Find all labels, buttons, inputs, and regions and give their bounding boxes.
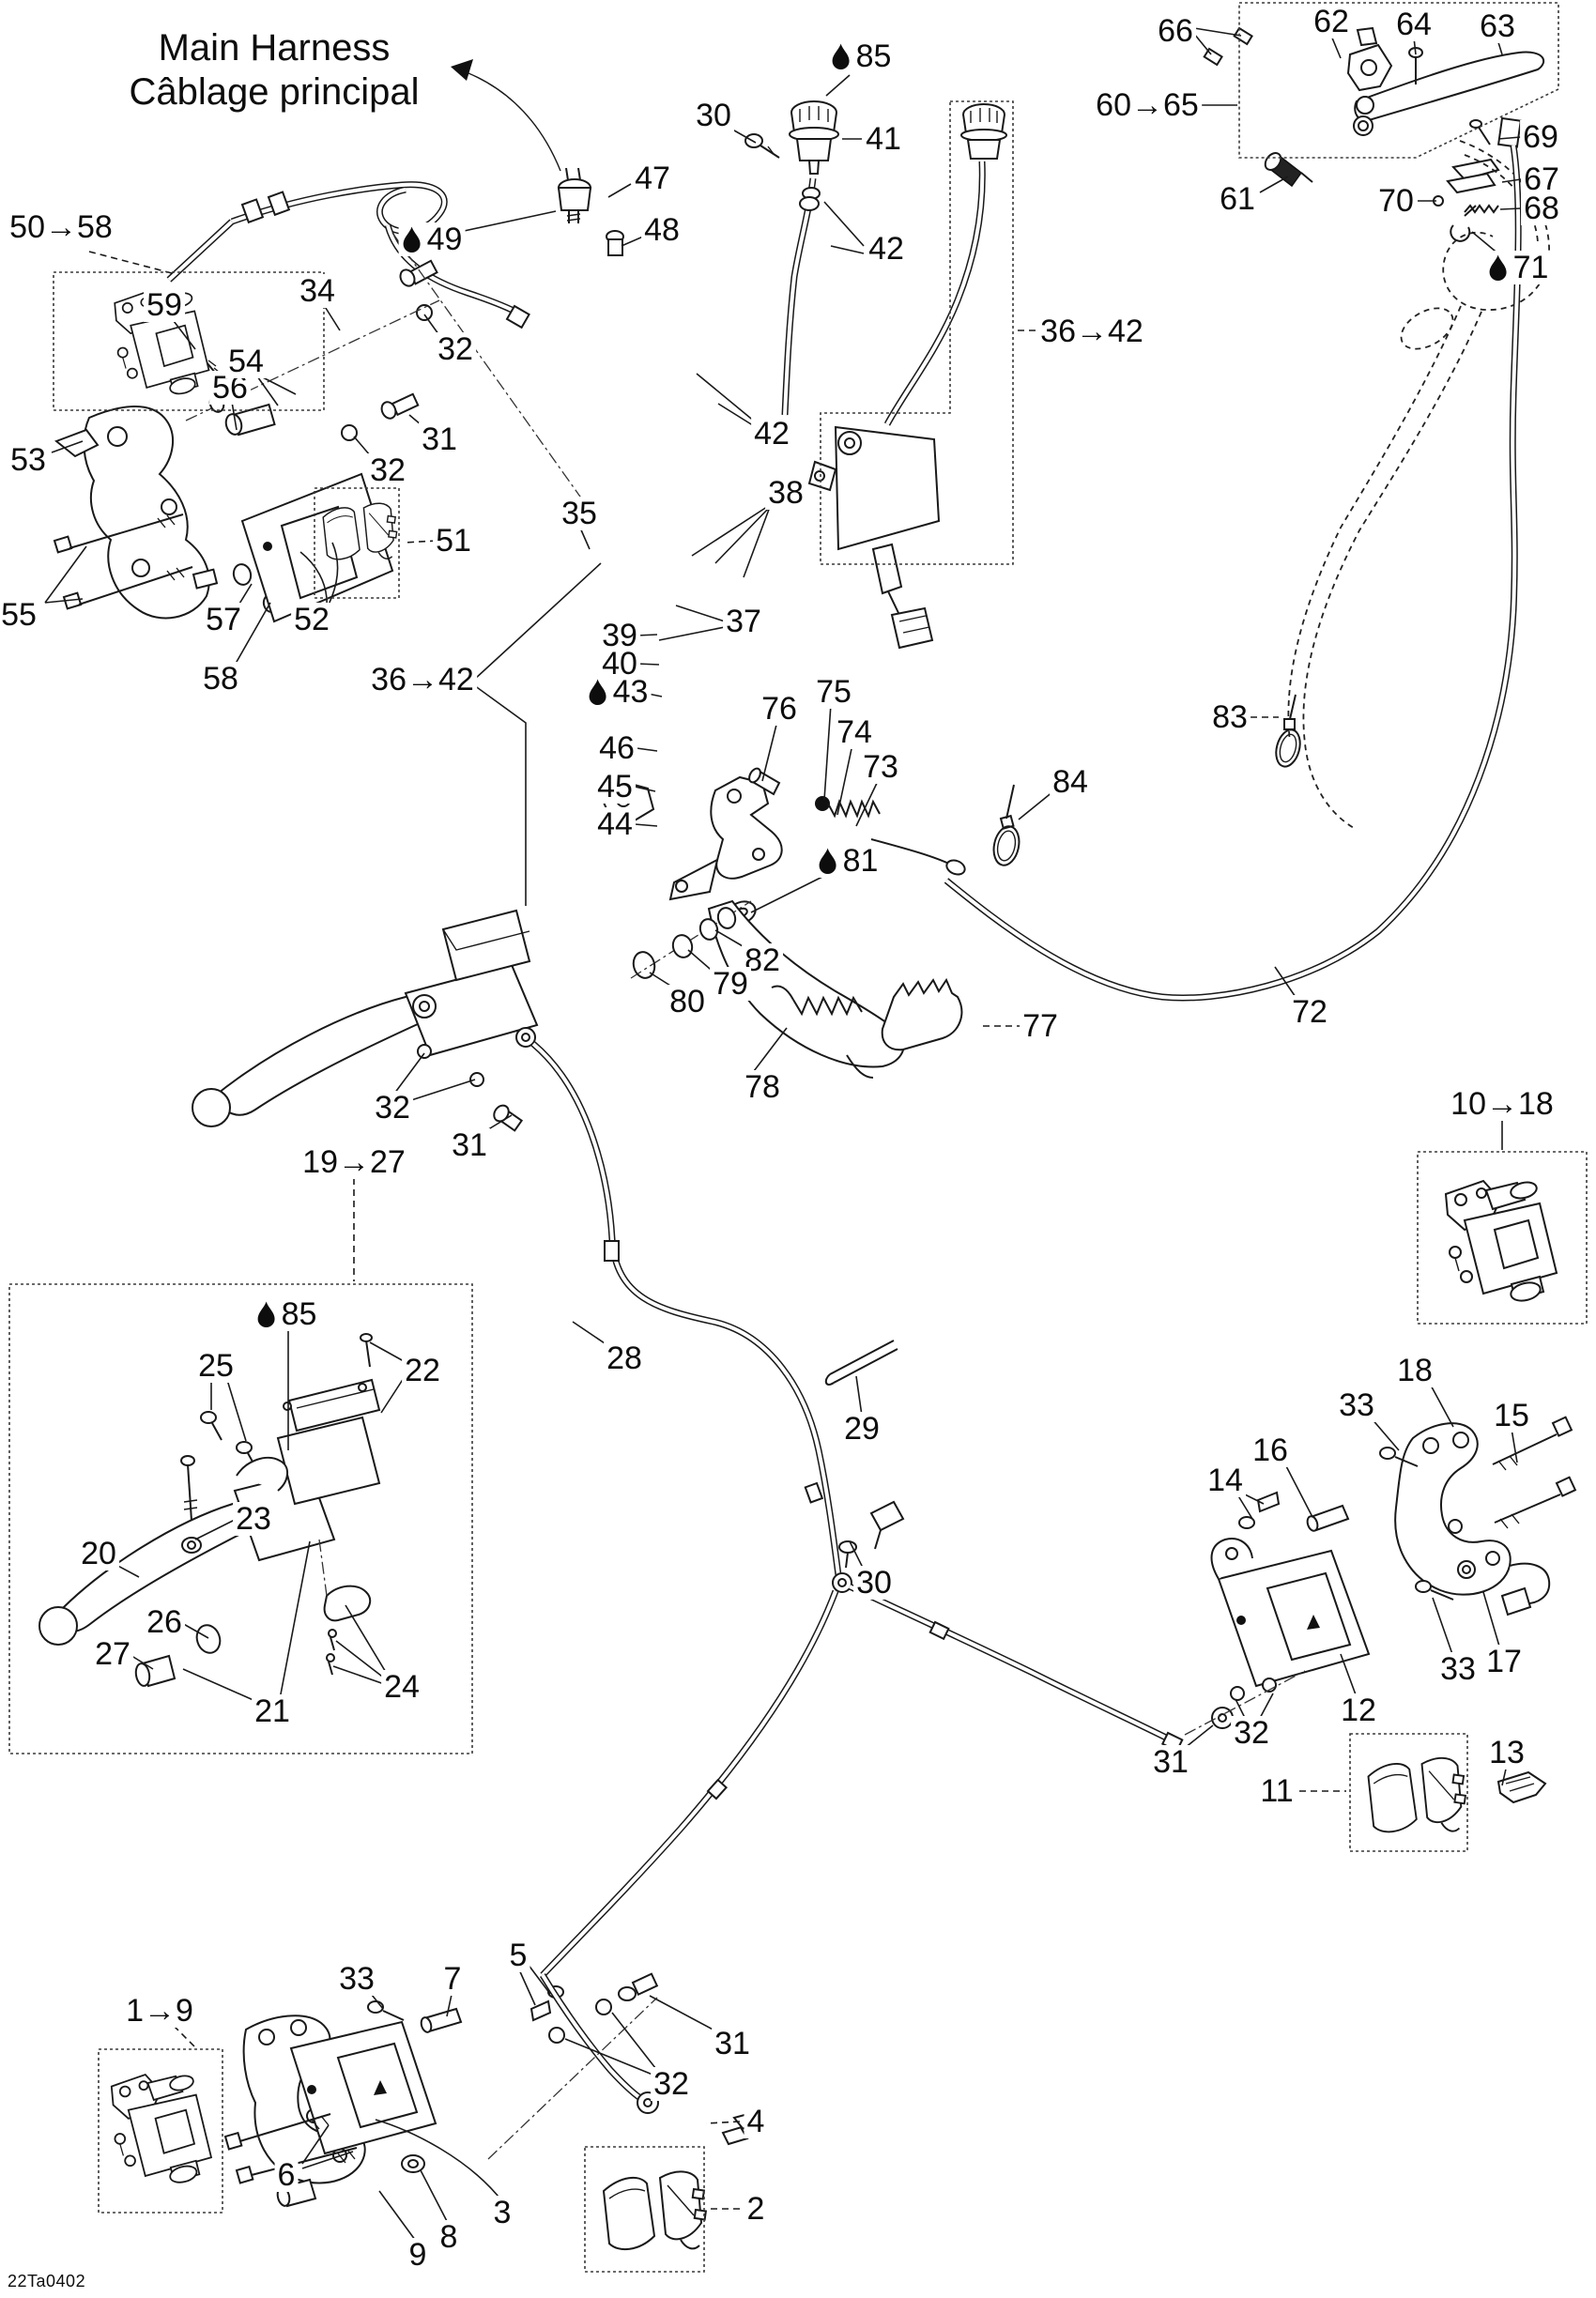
callout-text: 32 bbox=[1234, 1717, 1269, 1749]
callout-text: 81 bbox=[843, 845, 879, 877]
callout-50-to-58-0: 50→58 bbox=[7, 210, 115, 244]
callout-text: 20 bbox=[81, 1538, 116, 1570]
callout-31-58: 31 bbox=[449, 1128, 490, 1162]
callout-text: 8 bbox=[440, 2221, 458, 2253]
callout-text: 71 bbox=[1513, 252, 1549, 283]
callout-text: 30 bbox=[696, 100, 731, 131]
callout-47-4: 47 bbox=[632, 161, 673, 195]
callout-20-64: 20 bbox=[78, 1537, 119, 1570]
callout-4-95: 4 bbox=[744, 2105, 768, 2138]
callout-text: 47 bbox=[635, 162, 670, 194]
callout-21-67: 21 bbox=[252, 1694, 293, 1728]
callout-text: 83 bbox=[1212, 701, 1248, 733]
callout-text: 48 bbox=[644, 214, 680, 246]
callout-38-35: 38 bbox=[765, 476, 806, 510]
callout-32-26: 32 bbox=[435, 332, 476, 366]
callout-61-16: 61 bbox=[1217, 182, 1258, 216]
callout-text: 17 bbox=[1486, 1646, 1522, 1678]
callout-75-45: 75 bbox=[813, 675, 854, 709]
callout-text: 32 bbox=[653, 2068, 689, 2100]
callout-text: 42 bbox=[868, 233, 904, 265]
callout-30-6: 30 bbox=[693, 99, 734, 132]
callout-57-31: 57 bbox=[203, 603, 244, 636]
callout-text: 70 bbox=[1378, 185, 1414, 217]
callout-text: 73 bbox=[863, 751, 898, 783]
callout-text: 33 bbox=[339, 1963, 375, 1995]
callout-51-29: 51 bbox=[433, 524, 474, 558]
callout-text: 30 bbox=[856, 1567, 892, 1599]
callout-32-94: 32 bbox=[651, 2067, 692, 2101]
callout-35-34: 35 bbox=[559, 497, 600, 530]
callout-18-73: 18 bbox=[1394, 1354, 1435, 1387]
callout-28-69: 28 bbox=[604, 1341, 645, 1375]
callout-text: 18 bbox=[1397, 1355, 1433, 1386]
callout-text: 32 bbox=[437, 333, 473, 365]
callout-36-to-42-10: 36→42 bbox=[1037, 314, 1146, 348]
callout-85-7: 85 bbox=[828, 39, 895, 73]
callout-59-1: 59 bbox=[144, 288, 185, 322]
callout-13-84: 13 bbox=[1486, 1736, 1527, 1769]
callout-33-78: 33 bbox=[1437, 1652, 1479, 1686]
callout-text: 35 bbox=[561, 498, 597, 529]
callout-text: 80 bbox=[669, 986, 705, 1018]
callout-31-93: 31 bbox=[712, 2027, 753, 2061]
brake-fluid-droplet-icon bbox=[588, 678, 608, 706]
callout-14-77: 14 bbox=[1205, 1463, 1246, 1497]
callout-text: 60→65 bbox=[1096, 89, 1199, 121]
callout-27-66: 27 bbox=[92, 1637, 133, 1671]
callout-text: 36→42 bbox=[1040, 315, 1143, 347]
callout-text: 2 bbox=[747, 2193, 765, 2225]
callout-31-82: 31 bbox=[1150, 1745, 1191, 1779]
callout-29-70: 29 bbox=[841, 1412, 882, 1446]
brake-fluid-droplet-icon bbox=[1488, 253, 1509, 282]
callout-text: 22 bbox=[405, 1355, 440, 1386]
callout-text: 5 bbox=[510, 1939, 528, 1971]
callout-26-65: 26 bbox=[144, 1605, 185, 1639]
callout-text: 66 bbox=[1158, 15, 1193, 47]
callout-text: 44 bbox=[597, 808, 633, 840]
callout-10-to-18-72: 10→18 bbox=[1448, 1087, 1557, 1121]
callout-text: 36→42 bbox=[371, 664, 474, 696]
callout-52-30: 52 bbox=[291, 603, 332, 636]
callout-text: 19→27 bbox=[302, 1146, 406, 1178]
callout-text: 31 bbox=[452, 1129, 487, 1161]
callout-23-63: 23 bbox=[233, 1502, 274, 1536]
callout-text: 28 bbox=[606, 1342, 642, 1374]
callout-text: 58 bbox=[203, 663, 238, 695]
callout-34-3: 34 bbox=[297, 274, 338, 308]
callout-68-20: 68 bbox=[1521, 191, 1562, 225]
callout-text: 59 bbox=[146, 289, 182, 321]
drawing-code: 22Ta0402 bbox=[8, 2272, 85, 2291]
callout-text: 6 bbox=[278, 2159, 296, 2191]
callout-text: 15 bbox=[1494, 1400, 1529, 1432]
callout-44-43: 44 bbox=[594, 807, 636, 841]
callout-text: 32 bbox=[375, 1092, 410, 1124]
callout-text: 29 bbox=[844, 1413, 880, 1445]
callout-text: 75 bbox=[816, 676, 852, 708]
callout-text: 9 bbox=[409, 2239, 427, 2271]
callout-17-79: 17 bbox=[1483, 1645, 1525, 1678]
callout-54-25: 54 bbox=[225, 345, 267, 378]
callout-text: 49 bbox=[427, 223, 463, 255]
callout-7-87: 7 bbox=[441, 1962, 465, 1996]
callout-74-46: 74 bbox=[834, 715, 875, 749]
callout-62-12: 62 bbox=[1311, 5, 1352, 38]
callout-42-9: 42 bbox=[866, 232, 907, 266]
callout-79-50: 79 bbox=[710, 967, 751, 1001]
callout-text: 41 bbox=[866, 123, 901, 155]
callout-80-51: 80 bbox=[667, 985, 708, 1019]
callout-text: 69 bbox=[1523, 121, 1558, 153]
callout-25-61: 25 bbox=[195, 1349, 237, 1383]
callout-22-62: 22 bbox=[402, 1354, 443, 1387]
callout-32-57: 32 bbox=[372, 1091, 413, 1125]
callout-text: 31 bbox=[422, 423, 457, 455]
callout-text: 51 bbox=[436, 525, 471, 557]
callout-33-86: 33 bbox=[336, 1962, 377, 1996]
callout-text: 1→9 bbox=[126, 1995, 193, 2027]
callout-76-44: 76 bbox=[759, 692, 800, 726]
callout-text: 68 bbox=[1524, 192, 1559, 224]
callout-text: 85 bbox=[282, 1298, 317, 1330]
callout-text: 12 bbox=[1341, 1694, 1376, 1726]
callout-text: 7 bbox=[444, 1963, 462, 1995]
callout-text: 33 bbox=[1440, 1653, 1476, 1685]
brake-fluid-droplet-icon bbox=[402, 225, 422, 253]
callout-12-80: 12 bbox=[1338, 1693, 1379, 1727]
callout-15-75: 15 bbox=[1491, 1399, 1532, 1432]
callout-32-28: 32 bbox=[367, 453, 408, 487]
callout-text: 13 bbox=[1489, 1737, 1525, 1769]
callout-text: 53 bbox=[10, 444, 46, 476]
callout-text: 50→58 bbox=[9, 211, 113, 243]
parts-diagram-page: Main Harness Câblage principal 50→585949… bbox=[0, 0, 1596, 2298]
callout-69-17: 69 bbox=[1520, 120, 1561, 154]
callout-84-54: 84 bbox=[1050, 765, 1091, 799]
callout-text: 10→18 bbox=[1450, 1088, 1554, 1120]
callout-text: 24 bbox=[384, 1671, 420, 1703]
callout-11-83: 11 bbox=[1257, 1774, 1296, 1808]
callout-text: 63 bbox=[1480, 10, 1515, 42]
callout-73-47: 73 bbox=[860, 750, 901, 784]
callout-text: 62 bbox=[1313, 6, 1349, 38]
callout-1-to-9-85: 1→9 bbox=[123, 1994, 196, 2028]
callout-text: 79 bbox=[713, 968, 748, 1000]
callout-text: 4 bbox=[747, 2106, 765, 2137]
callout-2-96: 2 bbox=[744, 2192, 768, 2226]
callout-9-90: 9 bbox=[407, 2238, 430, 2272]
callout-6-89: 6 bbox=[275, 2158, 299, 2192]
callout-60-to-65-15: 60→65 bbox=[1093, 88, 1202, 122]
callout-text: 77 bbox=[1022, 1010, 1058, 1042]
callout-19-to-27-59: 19→27 bbox=[299, 1145, 408, 1179]
callout-text: 72 bbox=[1292, 996, 1327, 1028]
callout-53-22: 53 bbox=[8, 443, 49, 477]
callout-text: 25 bbox=[198, 1350, 234, 1382]
callout-43-40: 43 bbox=[585, 675, 652, 709]
callout-text: 31 bbox=[714, 2028, 750, 2060]
brake-fluid-droplet-icon bbox=[831, 42, 852, 70]
callout-text: 34 bbox=[299, 275, 335, 307]
callout-text: 85 bbox=[856, 40, 892, 72]
callout-text: 26 bbox=[146, 1606, 182, 1638]
callout-58-32: 58 bbox=[200, 662, 241, 696]
callout-70-19: 70 bbox=[1375, 184, 1417, 218]
callout-text: 78 bbox=[744, 1071, 780, 1103]
callout-3-92: 3 bbox=[491, 2196, 514, 2229]
callout-text: 14 bbox=[1207, 1464, 1243, 1496]
brake-fluid-droplet-icon bbox=[818, 847, 838, 875]
callout-text: 33 bbox=[1339, 1389, 1374, 1421]
callout-66-11: 66 bbox=[1155, 14, 1196, 48]
callout-85-60: 85 bbox=[253, 1297, 320, 1331]
callout-5-88: 5 bbox=[507, 1938, 530, 1972]
callout-48-5: 48 bbox=[641, 213, 683, 247]
callout-72-56: 72 bbox=[1289, 995, 1330, 1029]
callout-33-74: 33 bbox=[1336, 1388, 1377, 1422]
brake-fluid-droplet-icon bbox=[256, 1300, 277, 1328]
callout-30-71: 30 bbox=[853, 1566, 895, 1600]
callout-55-23: 55 bbox=[0, 598, 39, 632]
callout-text: 27 bbox=[95, 1638, 130, 1670]
callout-layer: 50→5859493447483085414236→426662646360→6… bbox=[0, 0, 1596, 2298]
callout-text: 61 bbox=[1220, 183, 1255, 215]
callout-32-81: 32 bbox=[1231, 1716, 1272, 1750]
callout-text: 37 bbox=[726, 605, 761, 637]
callout-83-55: 83 bbox=[1209, 700, 1251, 734]
callout-42-36: 42 bbox=[751, 417, 792, 451]
callout-text: 52 bbox=[294, 604, 330, 636]
callout-8-91: 8 bbox=[437, 2220, 461, 2254]
callout-text: 74 bbox=[836, 716, 872, 748]
callout-text: 64 bbox=[1396, 8, 1432, 40]
callout-81-48: 81 bbox=[815, 844, 882, 878]
callout-77-53: 77 bbox=[1020, 1009, 1061, 1043]
callout-text: 11 bbox=[1260, 1775, 1293, 1807]
callout-45-42: 45 bbox=[594, 770, 636, 804]
callout-text: 45 bbox=[597, 771, 633, 803]
callout-text: 55 bbox=[1, 599, 37, 631]
callout-78-52: 78 bbox=[742, 1070, 783, 1104]
callout-63-14: 63 bbox=[1477, 9, 1518, 43]
callout-text: 21 bbox=[254, 1695, 290, 1727]
callout-text: 54 bbox=[228, 345, 264, 377]
callout-text: 57 bbox=[206, 604, 241, 636]
callout-text: 31 bbox=[1153, 1746, 1189, 1778]
callout-49-2: 49 bbox=[399, 222, 466, 256]
callout-24-68: 24 bbox=[381, 1670, 422, 1704]
callout-text: 3 bbox=[494, 2197, 512, 2229]
callout-text: 42 bbox=[754, 418, 790, 450]
callout-text: 84 bbox=[1052, 766, 1088, 798]
callout-64-13: 64 bbox=[1393, 8, 1435, 41]
callout-46-41: 46 bbox=[596, 731, 637, 765]
callout-text: 76 bbox=[761, 693, 797, 725]
callout-36-to-42-33: 36→42 bbox=[368, 663, 477, 697]
callout-text: 46 bbox=[599, 732, 635, 764]
callout-37-37: 37 bbox=[723, 605, 764, 638]
callout-41-8: 41 bbox=[863, 122, 904, 156]
callout-text: 43 bbox=[613, 676, 649, 708]
callout-text: 23 bbox=[236, 1503, 271, 1535]
callout-71-21: 71 bbox=[1485, 251, 1552, 284]
callout-16-76: 16 bbox=[1250, 1433, 1291, 1467]
callout-text: 38 bbox=[768, 477, 804, 509]
callout-text: 16 bbox=[1252, 1434, 1288, 1466]
callout-text: 32 bbox=[370, 454, 406, 486]
callout-31-27: 31 bbox=[419, 422, 460, 456]
